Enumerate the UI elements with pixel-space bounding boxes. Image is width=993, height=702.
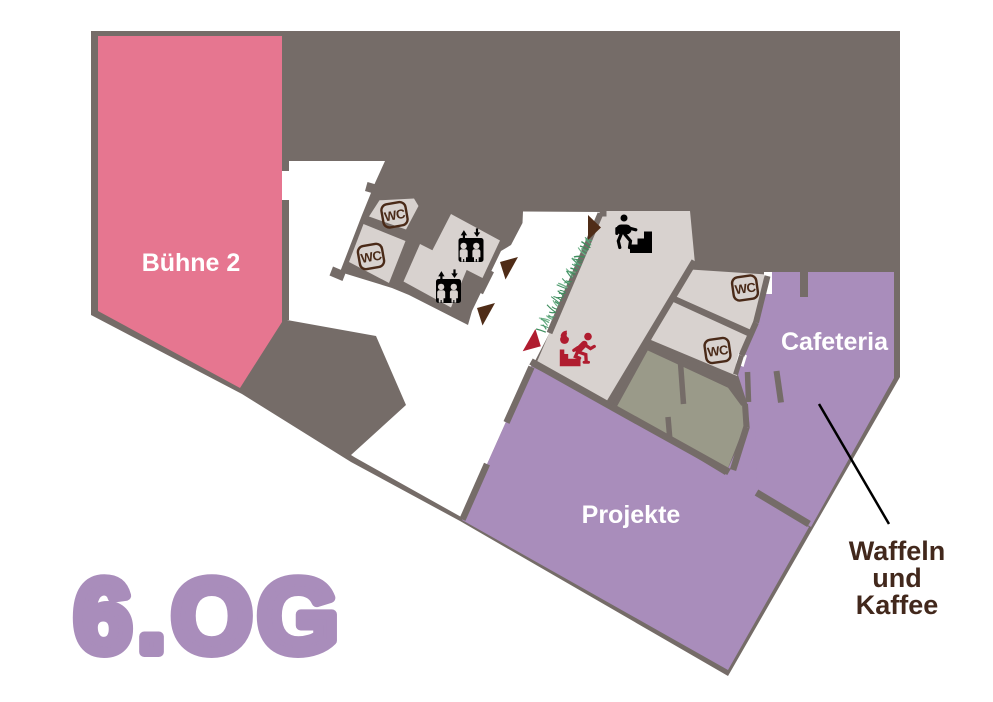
svg-text:Cafeteria: Cafeteria <box>781 328 889 356</box>
svg-text:6.OG: 6.OG <box>74 559 344 675</box>
svg-text:WC: WC <box>706 342 730 360</box>
svg-text:Bühne 2: Bühne 2 <box>142 249 241 277</box>
svg-text:WC: WC <box>734 279 758 297</box>
svg-text:Waffeln: Waffeln <box>849 536 946 566</box>
svg-text:Kaffee: Kaffee <box>856 590 939 620</box>
svg-text:und: und <box>872 563 921 593</box>
svg-text:Projekte: Projekte <box>582 501 681 529</box>
